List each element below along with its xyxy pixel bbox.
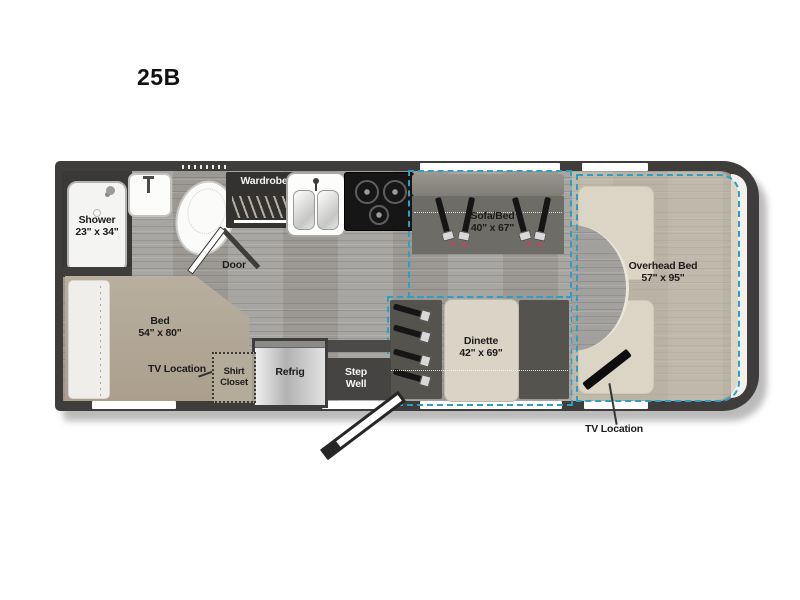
- tv-location-bedroom-label: TV Location: [146, 364, 208, 376]
- refrig-vent: [255, 341, 325, 348]
- shower: Shower 23" x 34": [67, 181, 127, 273]
- window: [584, 401, 648, 409]
- pillow: [68, 280, 110, 399]
- stove-cooktop: [344, 172, 414, 231]
- dinette-label: Dinette 42" x 69": [440, 336, 522, 359]
- refrigerator: Refrig: [252, 338, 328, 408]
- sofa-backrest: [412, 174, 564, 196]
- faucet-icon: [313, 178, 319, 184]
- step-well: Step Well: [321, 358, 391, 400]
- sink-basin: [293, 190, 315, 230]
- kitchen-sink: [286, 172, 346, 237]
- bed-label: Bed 54" x 80": [115, 316, 205, 339]
- rv-floorplan: Shower 23" x 34" Wardrobe Door: [55, 161, 759, 411]
- burner-icon: [369, 205, 389, 225]
- window: [582, 163, 648, 171]
- bathroom-wall: [62, 267, 132, 277]
- shirt-closet-label: Shirt Closet: [214, 367, 254, 388]
- sofa-label: Sofa/Bed 40" x 67": [445, 211, 540, 234]
- window: [92, 401, 176, 409]
- plan-title: 25B: [137, 64, 181, 91]
- burner-icon: [383, 180, 407, 204]
- vent-strip: [182, 165, 226, 169]
- showerhead-icon: [106, 186, 115, 195]
- step: [321, 340, 391, 352]
- floorplan-page: 25B Shower 23" x 34": [0, 0, 800, 600]
- dinette-seam: [390, 370, 568, 371]
- dinette-bench: [519, 300, 569, 399]
- refrig-label: Refrig: [275, 367, 304, 379]
- shower-dims: 23" x 34": [75, 227, 118, 239]
- drain-icon: [93, 209, 101, 217]
- step-well-label: Step Well: [336, 367, 376, 390]
- shirt-closet: Shirt Closet: [212, 352, 256, 403]
- faucet-icon: [147, 179, 150, 193]
- tv-location-cab-label: TV Location: [579, 424, 649, 436]
- bath-sink: [128, 173, 172, 217]
- overhead-bed-label: Overhead Bed 57" x 95": [627, 261, 699, 284]
- door-label: Door: [213, 260, 255, 272]
- closet-rod: [234, 220, 294, 223]
- bathroom: Shower 23" x 34": [62, 171, 132, 277]
- sink-basin: [317, 190, 339, 230]
- burner-icon: [355, 180, 379, 204]
